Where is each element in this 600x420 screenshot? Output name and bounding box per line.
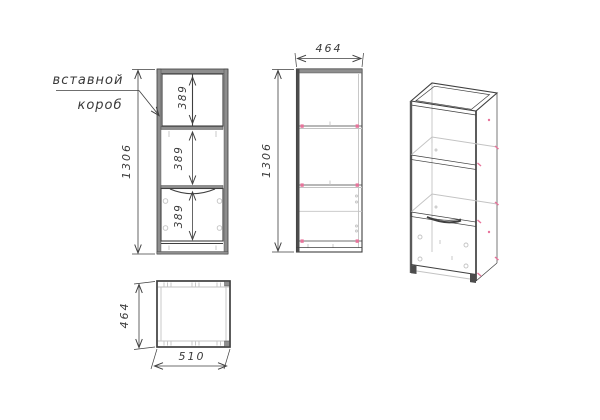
middle-section-height-label: 389 xyxy=(173,146,185,171)
callout-line1: вставной xyxy=(53,73,124,88)
front-left-panel xyxy=(157,69,161,254)
side-front-edge xyxy=(297,69,300,252)
side-height-label: 1306 xyxy=(260,142,273,178)
front-shelf-1 xyxy=(161,127,223,130)
front-top-panel xyxy=(157,69,228,74)
furniture-technical-drawing: 389 389 389 xyxy=(0,0,600,420)
insert-box-height-label: 389 xyxy=(177,85,189,110)
plan-depth-label: 464 xyxy=(118,302,131,329)
side-depth-label: 464 xyxy=(316,42,343,55)
connector-marker xyxy=(356,183,359,186)
connector-marker xyxy=(301,183,304,186)
connector-marker xyxy=(301,124,304,127)
connector-marker xyxy=(301,239,304,242)
connector-marker xyxy=(356,124,359,127)
callout-line2: короб xyxy=(77,98,122,113)
lower-section-height-label: 389 xyxy=(173,204,185,229)
connector-marker xyxy=(356,239,359,242)
canvas-background xyxy=(0,0,600,420)
front-right-panel xyxy=(224,69,228,254)
plan-width-label: 510 xyxy=(179,350,206,363)
front-height-label: 1306 xyxy=(120,143,133,179)
